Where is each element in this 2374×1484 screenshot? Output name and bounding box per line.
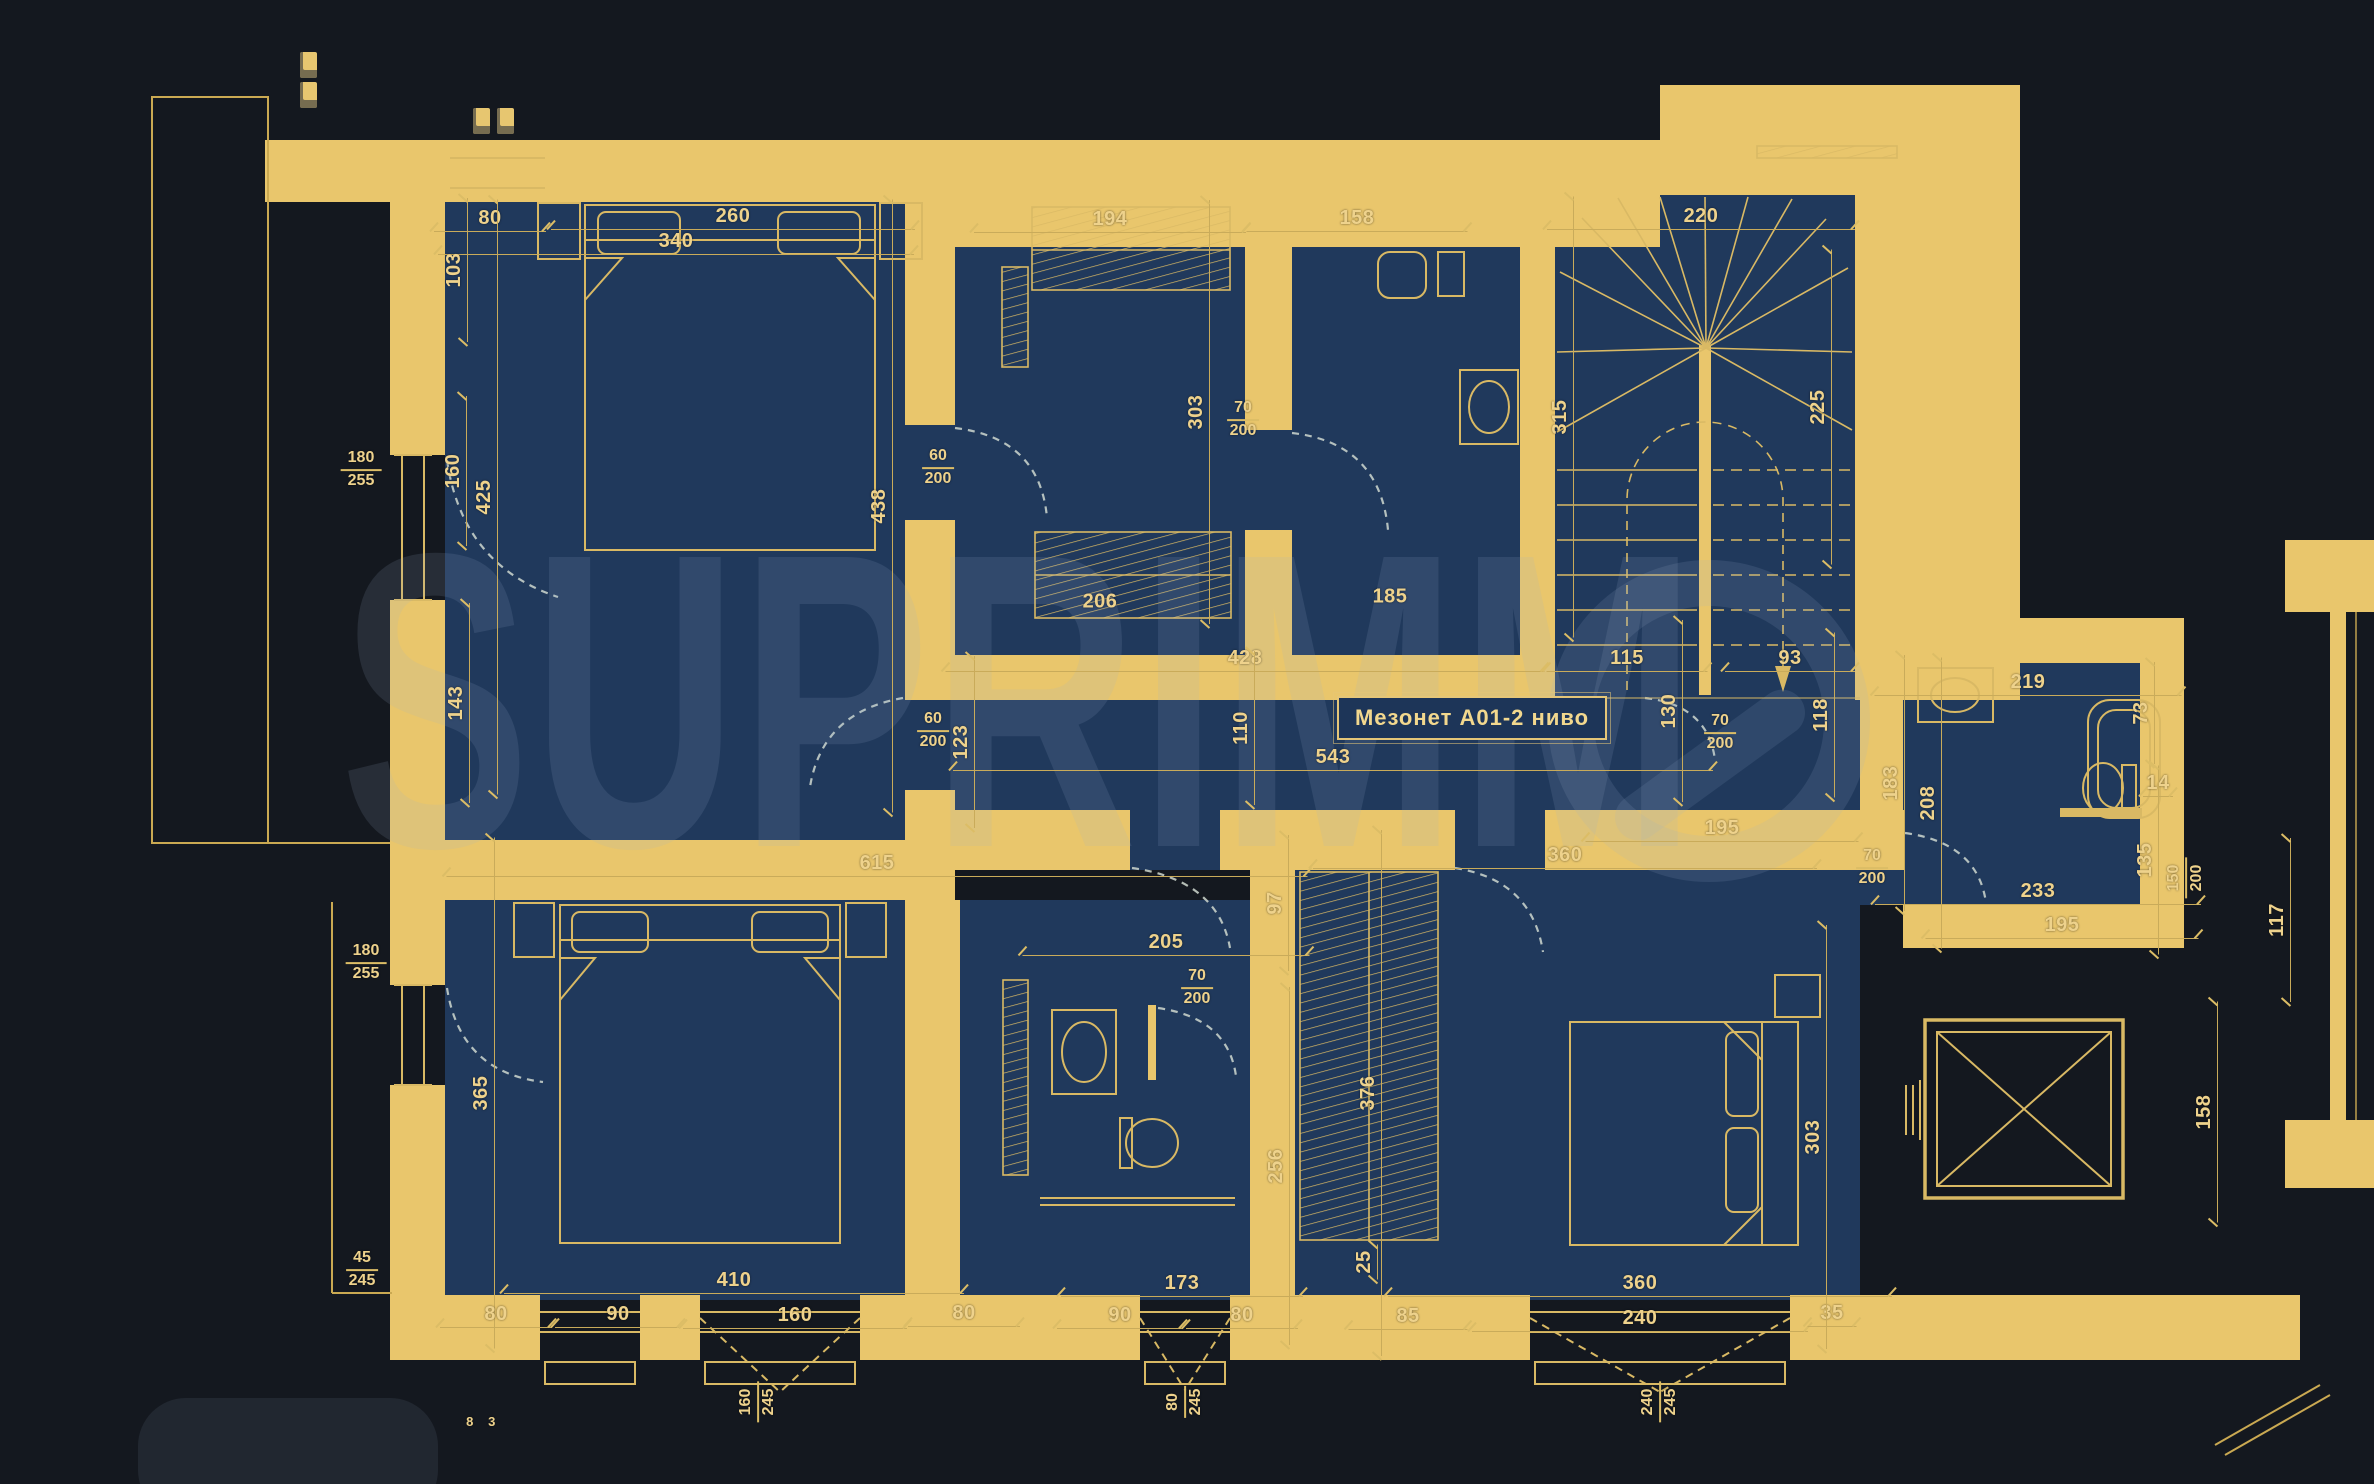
window-tag-icon (300, 82, 317, 108)
floorplan-screenshot: SUPRIMM 26034080103160425143438194206303… (0, 0, 2374, 1484)
room-bedroom-top-left (445, 202, 905, 845)
plan-title: Мезонет А01-2 ниво (1355, 705, 1589, 731)
wardrobe-closet-top (1032, 207, 1230, 290)
window-tag-icon (473, 108, 490, 134)
window-tag-icon (300, 52, 317, 78)
room-bath-top (1292, 247, 1520, 655)
balcony-outlines (152, 97, 392, 1293)
room-bedroom-bottom-left (445, 900, 905, 1300)
floor-plan-drawing (0, 0, 2374, 1484)
radiator-bath-bottom (1003, 980, 1028, 1175)
stair-spine-wall (1699, 345, 1711, 695)
elevator-shaft (1906, 1020, 2123, 1198)
stair-rail-hatch (1757, 146, 1897, 158)
radiator-closet (1002, 267, 1028, 367)
window-tag-icon (497, 108, 514, 134)
plan-title-box: Мезонет А01-2 ниво (1337, 696, 1607, 740)
